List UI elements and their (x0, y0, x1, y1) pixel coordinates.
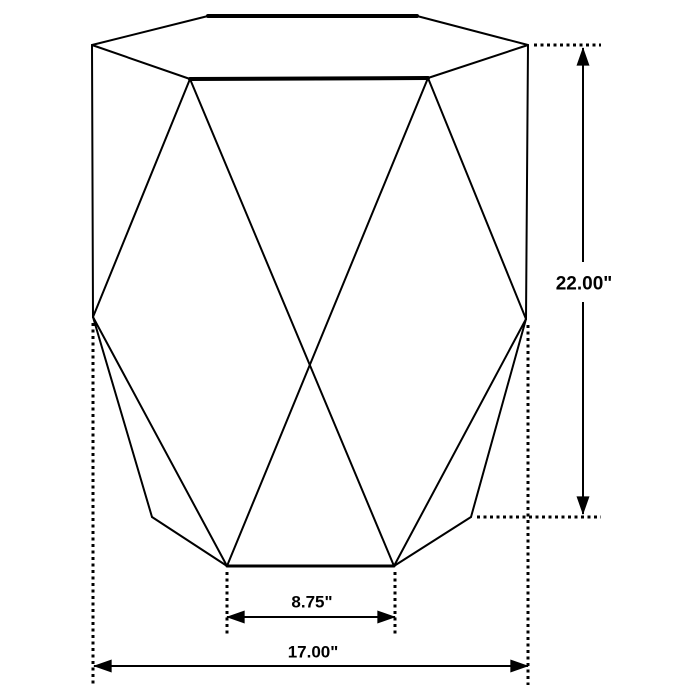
top-front-right-edge (428, 45, 528, 78)
base-left-edge (152, 517, 227, 566)
extension-lines-layer (93, 45, 601, 685)
lower-facet-right (394, 319, 526, 566)
top-back-right-edge (417, 16, 528, 45)
dimension-labels-layer: 22.00"8.75"17.00" (288, 274, 613, 662)
top-back-left-edge (92, 16, 208, 45)
facet-upper-right (428, 78, 526, 319)
dimension-lines-layer (94, 48, 583, 666)
left-side-edge (92, 45, 93, 317)
right-side-edge (526, 45, 528, 319)
base-right-edge (394, 517, 471, 566)
top-front-left-edge (92, 45, 190, 79)
top-front-edge (190, 78, 428, 79)
table-outline-layer (92, 16, 528, 566)
height-dimension-label: 22.00" (556, 274, 613, 295)
facet-diagonal-left (190, 79, 394, 566)
base-width-dimension-label: 8.75" (291, 593, 332, 612)
lower-silhouette-right (471, 319, 526, 517)
lower-silhouette-left (93, 317, 152, 517)
facet-diagonal-right (227, 78, 428, 566)
lower-facet-left (93, 317, 227, 566)
total-width-dimension-label: 17.00" (288, 643, 339, 662)
dimension-drawing-canvas: 22.00"8.75"17.00" (0, 0, 700, 700)
table-dimension-diagram: 22.00"8.75"17.00" (0, 0, 700, 700)
facet-upper-left (93, 79, 190, 317)
